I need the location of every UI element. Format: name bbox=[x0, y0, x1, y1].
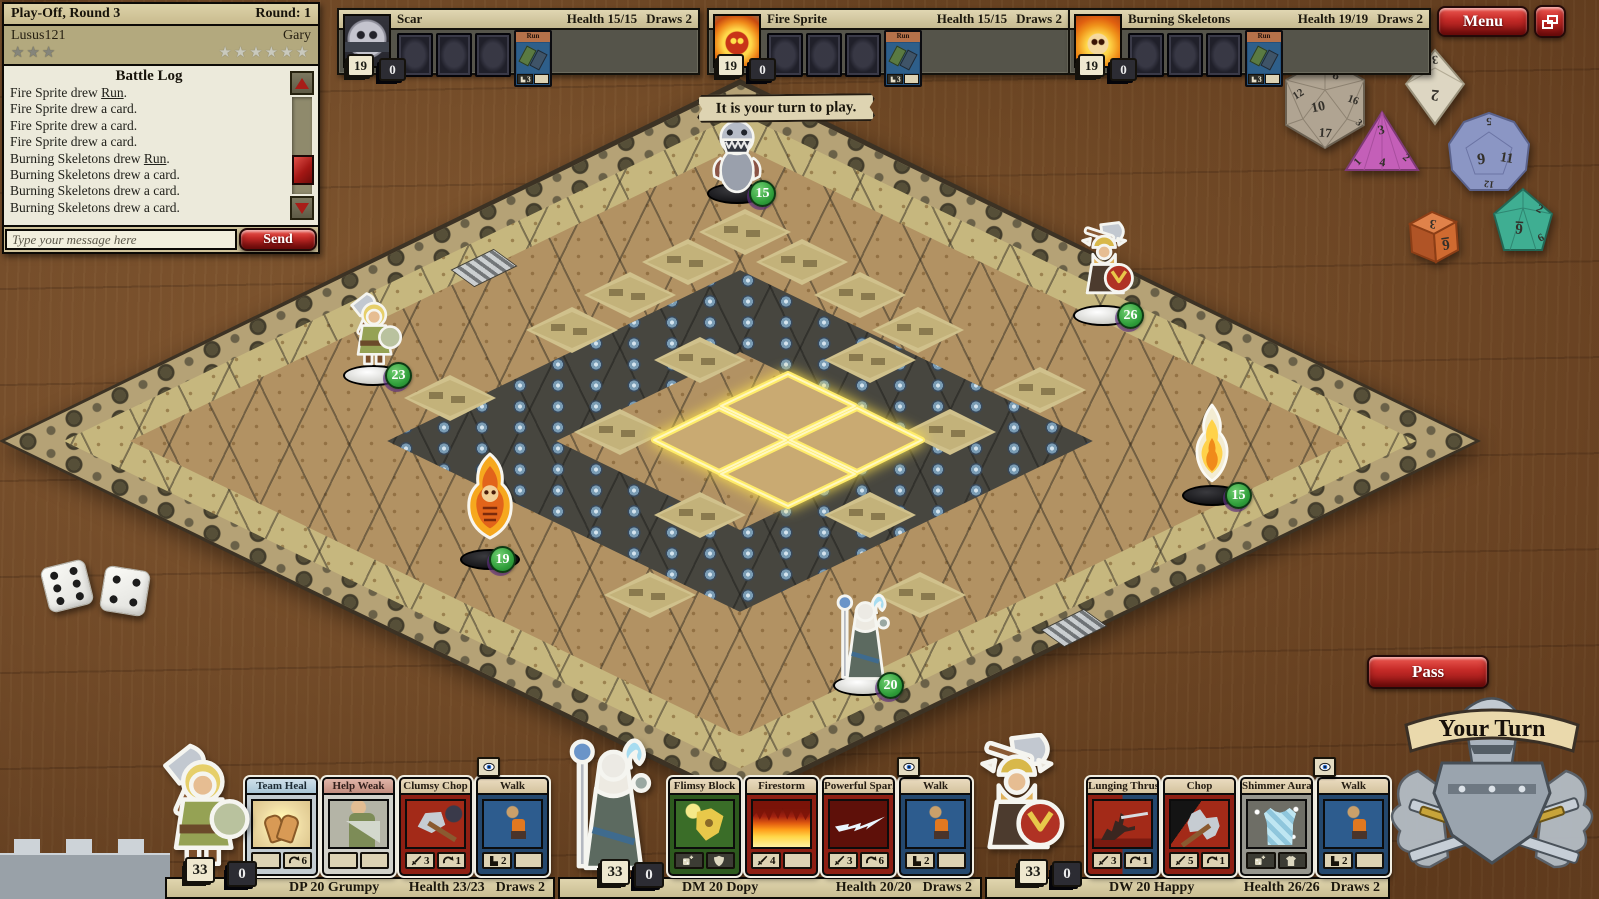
log-entry: Burning Skeletons drew a card. bbox=[10, 200, 288, 216]
menu-button[interactable]: Menu bbox=[1437, 6, 1529, 37]
log-entry: Fire Sprite drew a card. bbox=[10, 134, 288, 150]
deck-count: 33 bbox=[185, 857, 215, 883]
hand-card-help-weak[interactable]: Help Weak bbox=[322, 777, 395, 876]
empty-slot bbox=[783, 852, 813, 869]
card-slot: 6 bbox=[860, 852, 890, 869]
scrollbar-track[interactable] bbox=[292, 97, 312, 194]
players-bar: Lusus121 Gary ★★★ ★★★★★★ bbox=[4, 26, 318, 66]
enemy-panel-burning-skeletons: Burning Skeletons Health 19/19Draws 2 Ru… bbox=[1068, 8, 1431, 75]
white-die-four bbox=[99, 565, 152, 618]
round-counter: Round: 1 bbox=[255, 6, 311, 22]
facedown-card bbox=[436, 33, 472, 77]
hand-card-walk[interactable]: Walk 2 bbox=[1317, 777, 1390, 876]
svg-text:5: 5 bbox=[1486, 115, 1492, 127]
token-dopy[interactable]: 20 bbox=[826, 588, 900, 696]
discard-count: 0 bbox=[634, 862, 664, 888]
log-entry: Fire Sprite drew a card. bbox=[10, 101, 288, 117]
right-player-stars: ★★★★★★ bbox=[218, 44, 311, 60]
match-title: Play-Off, Round 3 bbox=[11, 6, 120, 22]
enemy-health: Health 19/19 bbox=[1298, 11, 1368, 27]
send-button[interactable]: Send bbox=[239, 228, 317, 251]
revealed-card-run[interactable]: Run 3 bbox=[884, 30, 922, 87]
player-health: Health 20/20 bbox=[836, 880, 912, 896]
card-art bbox=[328, 799, 389, 849]
deck-count: 33 bbox=[1018, 859, 1048, 885]
windows-icon bbox=[1542, 15, 1558, 29]
kept-card-indicator[interactable] bbox=[897, 757, 920, 777]
burning-skeleton-figure bbox=[454, 441, 526, 563]
card-art bbox=[1169, 799, 1230, 849]
enemy-panel-scar: Scar Health 15/15Draws 2 Run 3 19 0 bbox=[337, 8, 700, 75]
triangle-up-icon bbox=[295, 78, 309, 89]
enemy-panel-fire-sprite: Fire Sprite Health 15/15Draws 2 Run 3 19… bbox=[707, 8, 1070, 75]
card-slot bbox=[1278, 852, 1308, 869]
player-draws: Draws 2 bbox=[1331, 880, 1380, 896]
battle-log-panel: Play-Off, Round 3 Round: 1 Lusus121 Gary… bbox=[2, 2, 320, 254]
discard-count: 0 bbox=[227, 861, 257, 887]
boot-icon bbox=[1328, 855, 1340, 867]
die-plus-icon bbox=[1254, 855, 1266, 867]
run-card-art bbox=[887, 43, 919, 73]
empty-slot bbox=[1355, 852, 1385, 869]
empty-slot bbox=[514, 852, 544, 869]
sword-icon bbox=[756, 855, 768, 867]
token-burning-skeleton[interactable]: 19 bbox=[452, 438, 528, 570]
scroll-up-button[interactable] bbox=[290, 71, 314, 95]
boot-icon bbox=[519, 76, 526, 83]
run-card-art bbox=[517, 43, 549, 73]
card-art bbox=[1246, 799, 1307, 849]
hand-card-firestorm[interactable]: Firestorm 4 bbox=[745, 777, 818, 876]
empty-slot bbox=[534, 74, 550, 84]
enemy-draws: Draws 2 bbox=[1377, 11, 1423, 27]
discard-count: 0 bbox=[1110, 58, 1137, 81]
hand-card-flimsy-block[interactable]: Flimsy Block bbox=[668, 777, 741, 876]
empty-slot bbox=[904, 74, 920, 84]
sword-icon bbox=[410, 855, 422, 867]
chat-input[interactable] bbox=[5, 229, 237, 250]
chat-bar: Send bbox=[4, 227, 318, 252]
card-slot: 3 bbox=[1092, 852, 1122, 869]
your-turn-label: Your Turn bbox=[1439, 716, 1546, 742]
boot-icon bbox=[889, 76, 896, 83]
discard-count: 0 bbox=[1052, 861, 1082, 887]
enemy-draws: Draws 2 bbox=[1016, 11, 1062, 27]
curved-arrow-icon bbox=[1206, 855, 1218, 867]
health-badge: 19 bbox=[489, 546, 516, 573]
card-slot: 2 bbox=[482, 852, 512, 869]
scrollbar-thumb[interactable] bbox=[292, 155, 314, 185]
card-art bbox=[482, 799, 543, 849]
card-slot: 1 bbox=[1124, 852, 1154, 869]
facedown-card bbox=[806, 33, 842, 77]
card-slot: 1 bbox=[437, 852, 467, 869]
hand-card-lunging-thrust[interactable]: Lunging Thrust 3 1 bbox=[1086, 777, 1159, 876]
card-slot bbox=[1246, 852, 1276, 869]
curved-arrow-icon bbox=[442, 855, 454, 867]
empty-slot bbox=[328, 852, 358, 869]
hand-card-walk[interactable]: Walk 2 bbox=[476, 777, 549, 876]
hand-card-clumsy-chop[interactable]: Clumsy Chop 3 1 bbox=[399, 777, 472, 876]
left-player-stars: ★★★ bbox=[11, 44, 57, 60]
log-entry: Fire Sprite drew Run. bbox=[10, 85, 288, 101]
log-entry: Fire Sprite drew a card. bbox=[10, 118, 288, 134]
curved-arrow-icon bbox=[865, 855, 877, 867]
die-d4: 3 1 4 2 bbox=[1342, 108, 1422, 180]
card-slot: 2 bbox=[1323, 852, 1353, 869]
victory-squares[interactable] bbox=[650, 370, 926, 512]
empty-slot bbox=[1265, 74, 1281, 84]
your-turn-crest: Your Turn bbox=[1388, 693, 1596, 897]
sword-icon bbox=[1097, 855, 1109, 867]
token-fire-sprite[interactable]: 15 bbox=[1176, 396, 1248, 506]
triangle-down-icon bbox=[295, 203, 309, 214]
deck-count: 19 bbox=[717, 54, 744, 77]
boot-icon bbox=[910, 855, 922, 867]
card-slot: 3 bbox=[405, 852, 435, 869]
scroll-down-button[interactable] bbox=[290, 196, 314, 220]
discard-count: 0 bbox=[379, 58, 406, 81]
deck-count: 19 bbox=[347, 54, 374, 77]
player-health: Health 26/26 bbox=[1244, 880, 1320, 896]
card-slot bbox=[706, 852, 736, 869]
eye-icon bbox=[1319, 761, 1331, 773]
facedown-card bbox=[475, 33, 511, 77]
card-art bbox=[1323, 799, 1384, 849]
kept-card-indicator[interactable] bbox=[1313, 757, 1336, 777]
card-art bbox=[828, 799, 889, 849]
hand-card-powerful-spark[interactable]: Powerful Spark 3 6 bbox=[822, 777, 895, 876]
card-slot: 2 bbox=[905, 852, 935, 869]
log-entry: Burning Skeletons drew a card. bbox=[10, 183, 288, 199]
die-plus-icon bbox=[682, 855, 694, 867]
player-panel-dopy: DM 20 Dopy Health 20/20Draws 2 33 0 Flim… bbox=[558, 745, 982, 899]
card-art bbox=[751, 799, 812, 849]
kept-card-indicator[interactable] bbox=[477, 757, 500, 777]
turn-message-banner: It is your turn to play. bbox=[697, 93, 875, 123]
player-health: Health 23/23 bbox=[409, 880, 485, 896]
match-title-bar: Play-Off, Round 3 Round: 1 bbox=[4, 4, 318, 26]
left-player-name: Lusus121 bbox=[11, 28, 65, 44]
empty-slot bbox=[360, 852, 390, 869]
die-d6-orange: 3 6 bbox=[1400, 200, 1464, 268]
pass-button[interactable]: Pass bbox=[1367, 655, 1489, 689]
battle-log: Battle Log Fire Sprite drew Run. Fire Sp… bbox=[4, 66, 318, 227]
enemy-health: Health 15/15 bbox=[937, 11, 1007, 27]
revealed-card-run[interactable]: Run 3 bbox=[514, 30, 552, 87]
eye-icon bbox=[483, 761, 495, 773]
enemy-health: Health 15/15 bbox=[567, 11, 637, 27]
die-d12: 5 9 11 12 bbox=[1446, 110, 1532, 198]
boot-icon bbox=[487, 855, 499, 867]
log-scrollbar[interactable] bbox=[290, 71, 314, 220]
token-happy[interactable]: 26 bbox=[1066, 216, 1140, 326]
card-art bbox=[905, 799, 966, 849]
health-badge: 23 bbox=[385, 362, 412, 389]
sword-icon bbox=[1174, 855, 1186, 867]
card-slot bbox=[674, 852, 704, 869]
deck-count: 33 bbox=[600, 859, 630, 885]
deck-count: 19 bbox=[1078, 54, 1105, 77]
health-badge: 15 bbox=[1225, 482, 1252, 509]
health-badge: 20 bbox=[877, 672, 904, 699]
eye-icon bbox=[903, 761, 915, 773]
svg-text:11: 11 bbox=[1499, 150, 1515, 167]
card-art bbox=[405, 799, 466, 849]
card-slot: 4 bbox=[751, 852, 781, 869]
player-panel-happy: DW 20 Happy Health 26/26Draws 2 33 0 Lun… bbox=[985, 745, 1390, 899]
enemy-draws: Draws 2 bbox=[646, 11, 692, 27]
facedown-card bbox=[845, 33, 881, 77]
card-art bbox=[1092, 799, 1153, 849]
card-art bbox=[674, 799, 735, 849]
revealed-card-run[interactable]: Run 3 bbox=[1245, 30, 1283, 87]
log-entry: Burning Skeletons drew Run. bbox=[10, 151, 288, 167]
shield-icon bbox=[713, 855, 725, 867]
armor-icon bbox=[1285, 855, 1297, 867]
sword-icon bbox=[833, 855, 845, 867]
hand-card-shimmer-aura[interactable]: Shimmer Aura bbox=[1240, 777, 1313, 876]
boot-icon bbox=[1250, 76, 1257, 83]
hand-card-chop[interactable]: Chop 5 1 bbox=[1163, 777, 1236, 876]
curved-arrow-icon bbox=[1129, 855, 1141, 867]
card-slot: 6 bbox=[283, 852, 313, 869]
card-slot: 1 bbox=[1201, 852, 1231, 869]
player-panel-grumpy: DP 20 Grumpy Health 23/23Draws 2 33 0 Te… bbox=[165, 745, 555, 899]
health-badge: 15 bbox=[749, 180, 776, 207]
health-badge: 26 bbox=[1117, 302, 1144, 329]
run-card-art bbox=[1248, 43, 1280, 73]
discard-count: 0 bbox=[749, 58, 776, 81]
card-slot: 5 bbox=[1169, 852, 1199, 869]
token-grumpy[interactable]: 23 bbox=[338, 284, 408, 386]
right-player-name: Gary bbox=[283, 28, 311, 44]
facedown-card bbox=[1167, 33, 1203, 77]
player-draws: Draws 2 bbox=[496, 880, 545, 896]
card-slot: 3 bbox=[828, 852, 858, 869]
card-art bbox=[251, 799, 312, 849]
facedown-card bbox=[1206, 33, 1242, 77]
svg-text:17: 17 bbox=[1318, 125, 1333, 141]
svg-text:3: 3 bbox=[1432, 53, 1439, 67]
battle-log-title: Battle Log bbox=[10, 68, 288, 85]
curved-arrow-icon bbox=[288, 855, 300, 867]
fullscreen-button[interactable] bbox=[1534, 5, 1566, 38]
die-d10: 2 6 9 bbox=[1486, 186, 1560, 264]
log-entry: Burning Skeletons drew a card. bbox=[10, 167, 288, 183]
